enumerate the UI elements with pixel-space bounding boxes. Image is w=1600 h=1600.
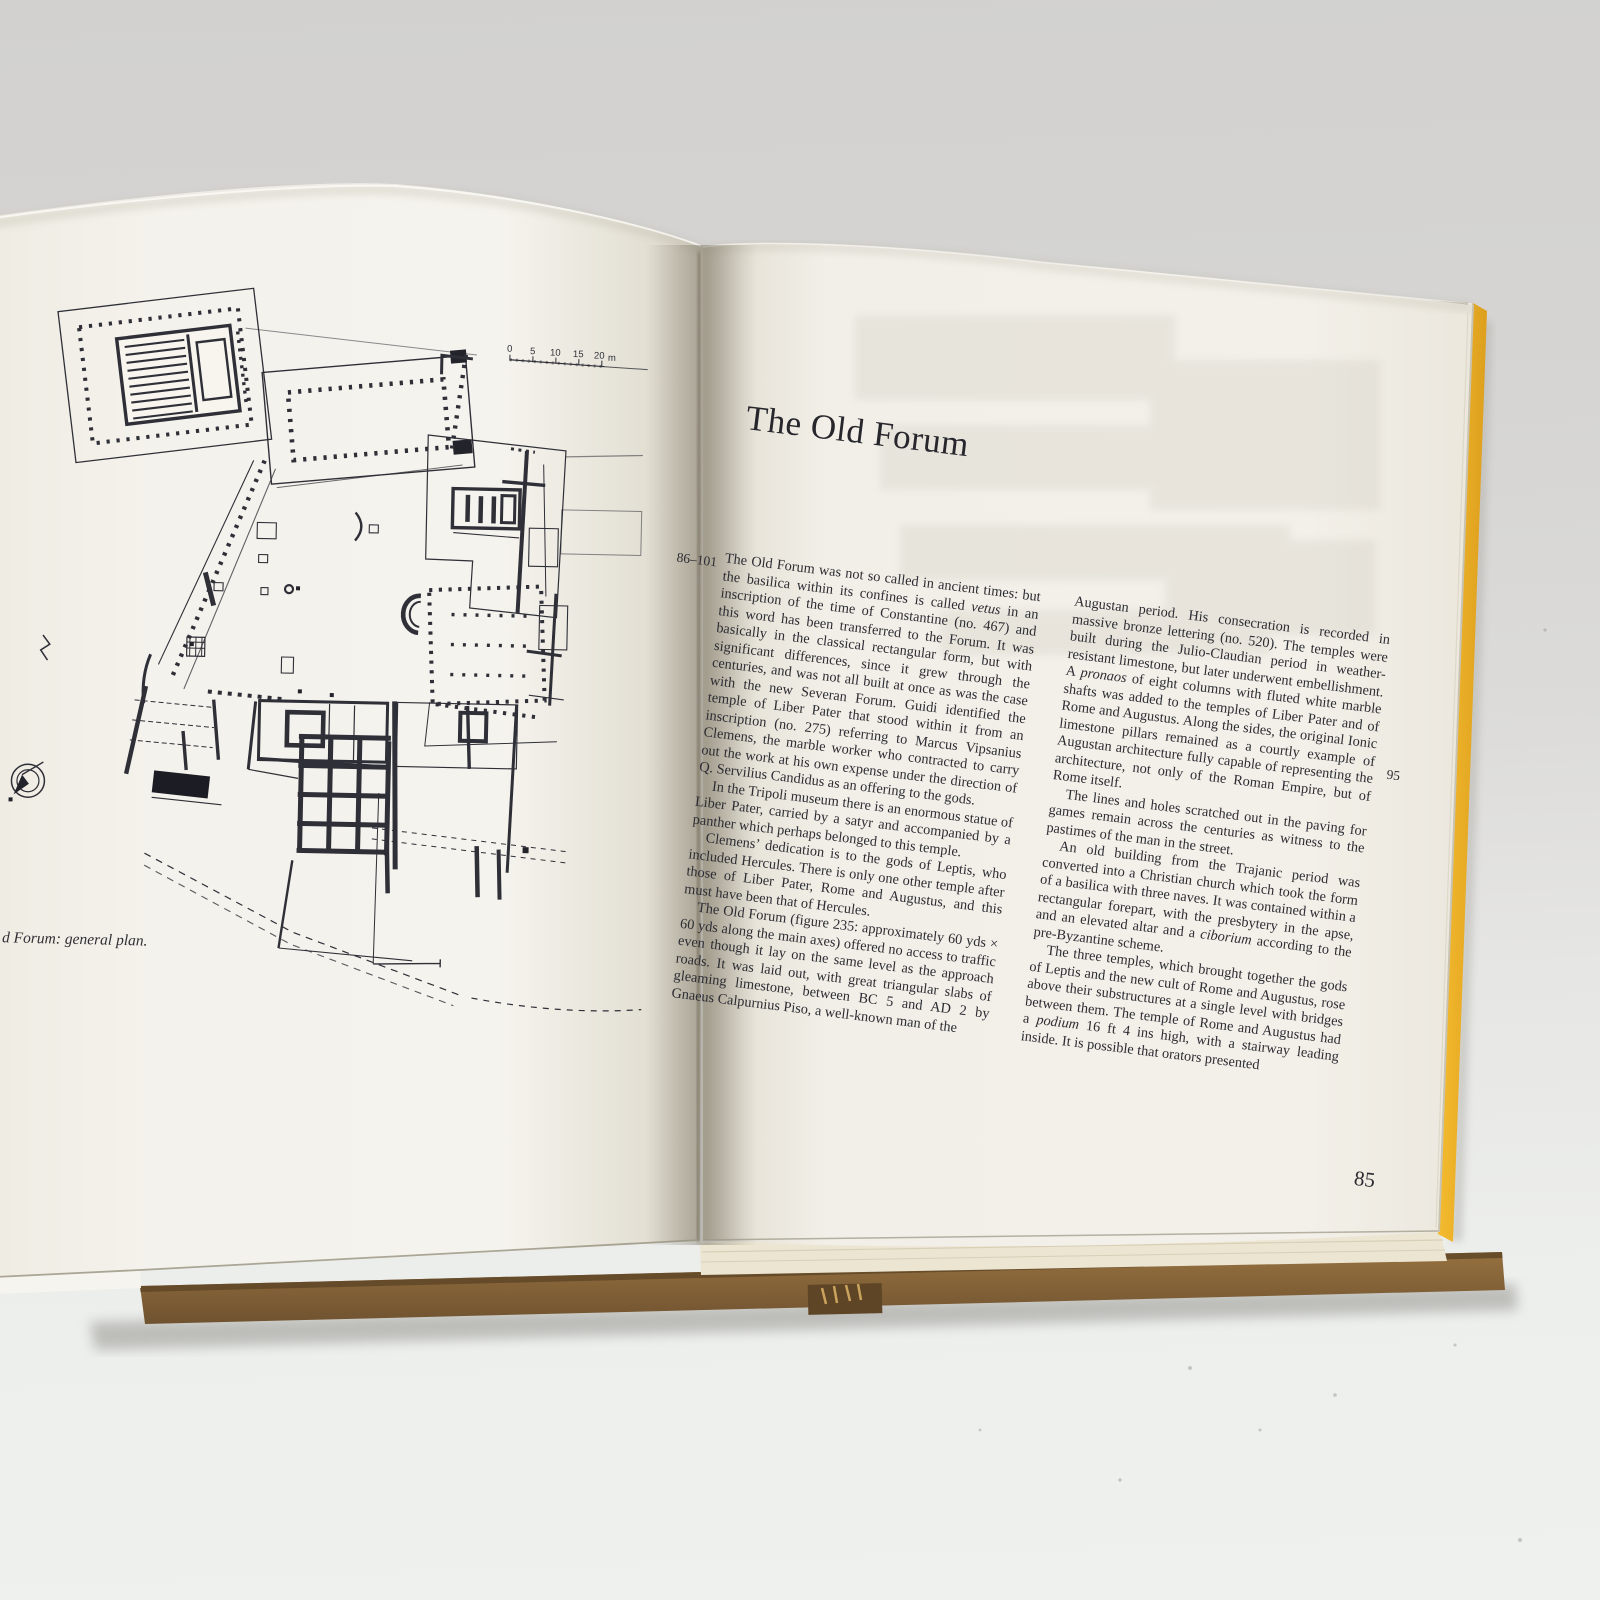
plan-colonnade-street — [40, 456, 276, 691]
plan-sw-building — [125, 654, 224, 805]
scale-tick-10: 10 — [550, 348, 561, 359]
spine-headband — [808, 1283, 883, 1315]
scale-tick-20: 20 — [594, 350, 605, 361]
plan-temple-nw — [58, 288, 272, 462]
plan-east-building — [424, 435, 643, 619]
plan-courtyard — [262, 349, 476, 488]
paragraph: Augustan period. His consecration is rec… — [1052, 593, 1391, 823]
paragraph: The Old Forum was not so called in ancie… — [698, 551, 1041, 816]
forum-plan-figure: 0 5 10 15 20 m — [0, 163, 669, 1017]
page-number: 85 — [1353, 1166, 1377, 1193]
scale-tick-0: 0 — [507, 344, 513, 355]
scale-unit: m — [608, 353, 616, 364]
scale-tick-15: 15 — [573, 349, 584, 360]
chapter-heading: The Old Forum — [744, 398, 971, 465]
right-page-content: The Old Forum 86–101 The Old Forum was n… — [593, 368, 1504, 1340]
text-column-right: Augustan period. His consecration is rec… — [1020, 593, 1391, 1083]
scale-tick-5: 5 — [530, 346, 536, 357]
plan-hatched-base — [187, 637, 205, 656]
plan-basilica-complex — [202, 691, 518, 968]
scale-bar: 0 5 10 15 20 m — [507, 344, 648, 370]
text-column-left: The Old Forum was not so called in ancie… — [670, 551, 1041, 1041]
margin-reference-2: 95 — [1386, 767, 1401, 785]
photo-scene: 0 5 10 15 20 m d Forum: general plan. Th… — [0, 0, 1600, 1600]
margin-reference: 86–101 — [676, 550, 718, 571]
compass-rose-icon — [9, 761, 45, 802]
